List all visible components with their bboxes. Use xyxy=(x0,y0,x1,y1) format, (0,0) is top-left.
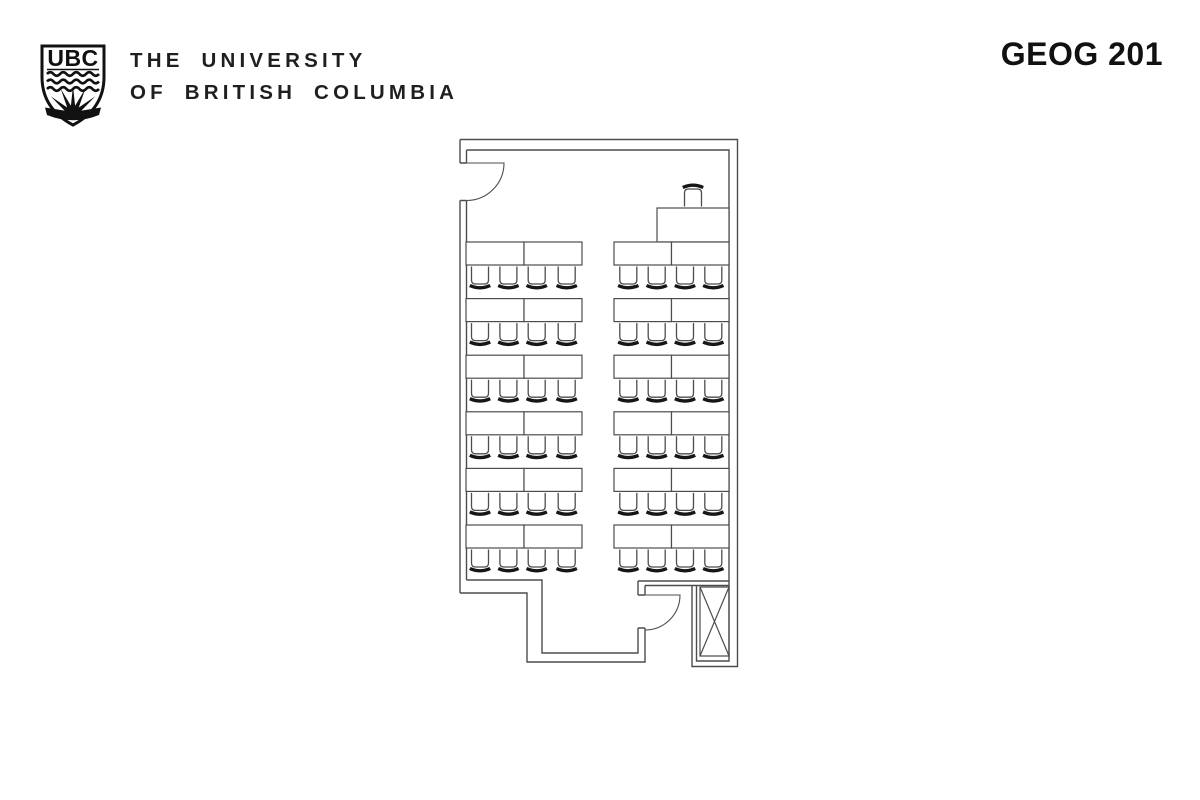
institution-line-1: THE UNIVERSITY xyxy=(130,45,458,77)
ubc-logo-icon: UBC xyxy=(37,41,107,129)
institution-line-2: OF BRITISH COLUMBIA xyxy=(130,77,458,109)
door-top-left xyxy=(467,163,505,201)
desk-block-left-2 xyxy=(466,299,582,345)
desk-block-left-5 xyxy=(466,468,582,514)
course-code: GEOG 201 xyxy=(1001,36,1163,73)
desk-block-right-6 xyxy=(614,525,729,571)
instructor-chair-icon xyxy=(683,185,703,206)
crest-acronym: UBC xyxy=(47,45,98,71)
desk-block-right-5 xyxy=(614,468,729,514)
desk-block-right-3 xyxy=(614,355,729,401)
desk-block-right-1 xyxy=(614,242,729,288)
desk-block-right-2 xyxy=(614,299,729,345)
desk-block-right-4 xyxy=(614,412,729,458)
student-desk-rows xyxy=(466,242,729,571)
desk-block-left-3 xyxy=(466,355,582,401)
desk-block-left-4 xyxy=(466,412,582,458)
floor-plan xyxy=(440,130,760,700)
shaft-crossed-box xyxy=(700,587,729,656)
desk-block-left-1 xyxy=(466,242,582,288)
instructor-station xyxy=(657,185,729,242)
page: UBC THE UNIVERSITY OF BRITISH COLUMBIA G… xyxy=(0,0,1200,800)
desk-block-left-6 xyxy=(466,525,582,571)
instructor-table xyxy=(657,208,729,242)
institution-name: THE UNIVERSITY OF BRITISH COLUMBIA xyxy=(130,45,458,108)
door-bottom xyxy=(645,595,680,630)
